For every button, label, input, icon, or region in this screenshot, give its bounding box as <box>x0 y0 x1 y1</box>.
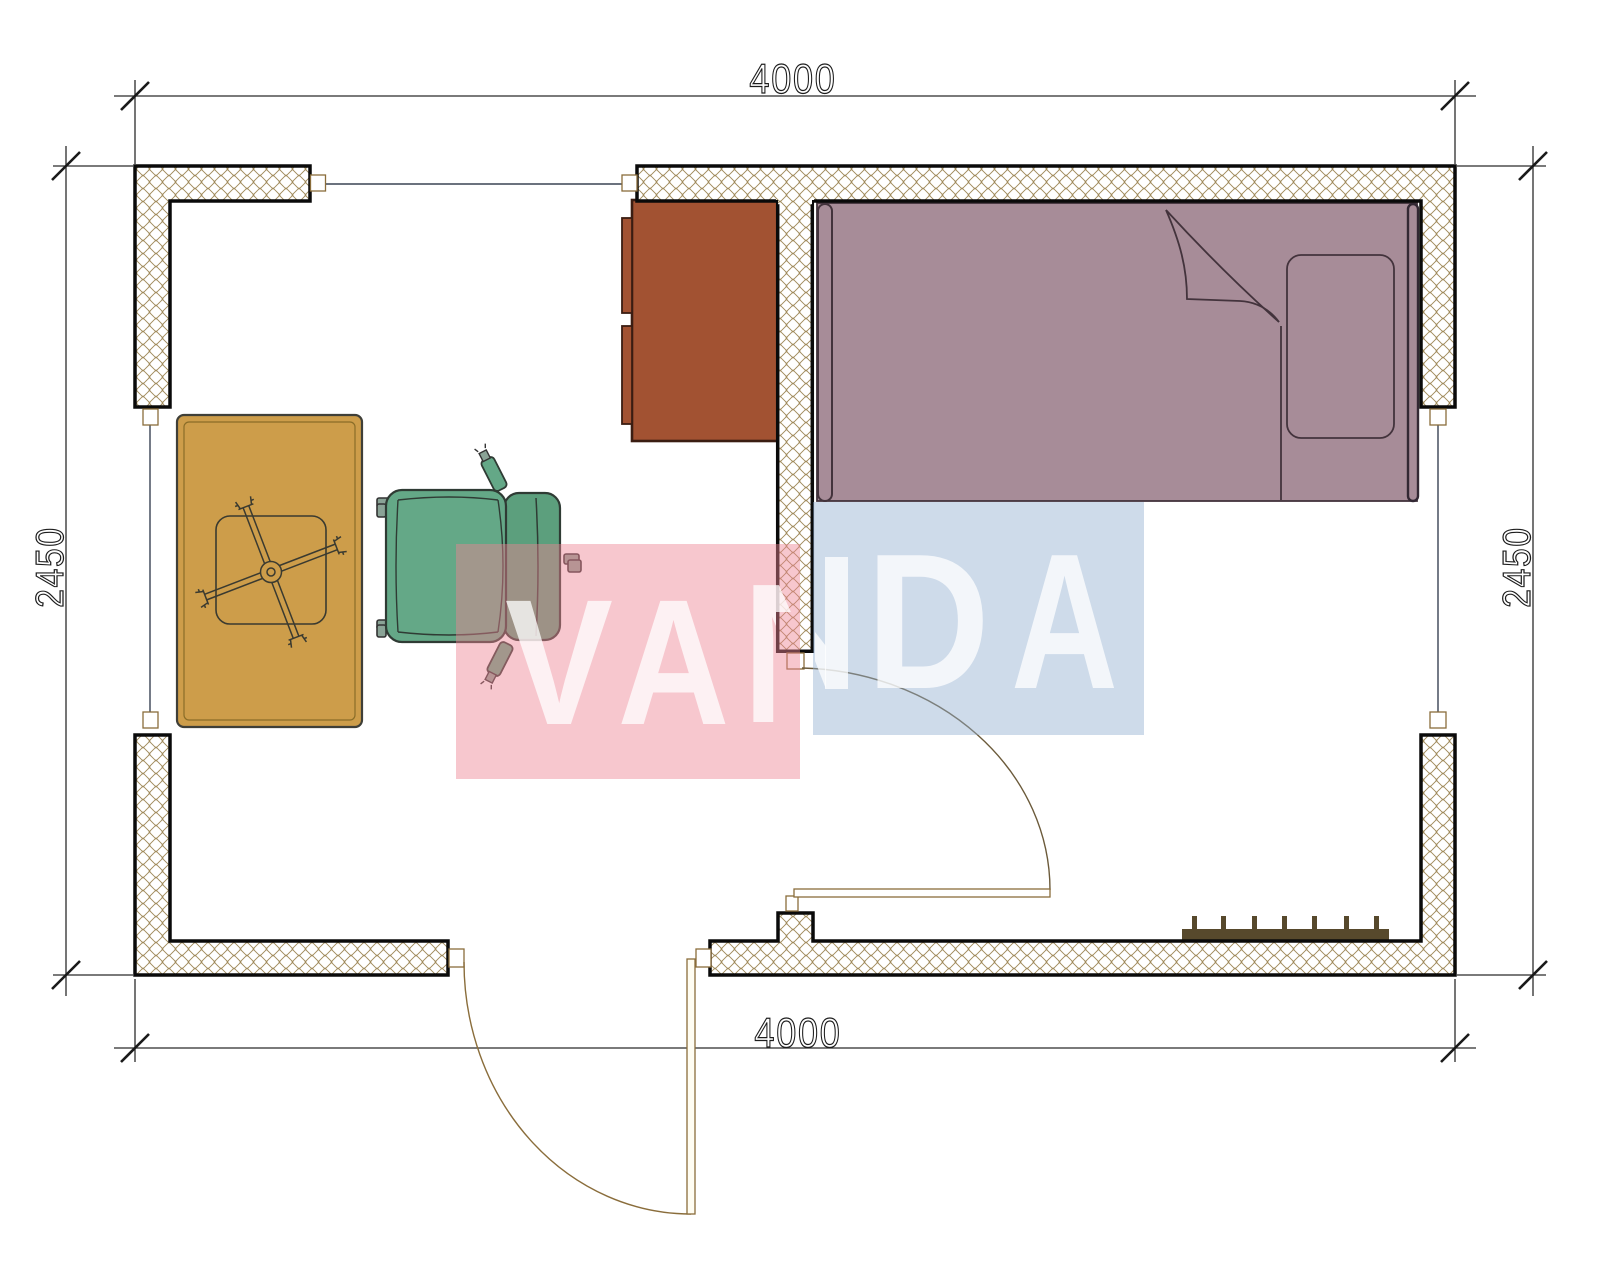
svg-text:4000: 4000 <box>749 57 836 103</box>
svg-text:V: V <box>505 562 613 762</box>
svg-text:A: A <box>1011 513 1118 729</box>
svg-text:D: D <box>866 513 990 729</box>
svg-text:4000: 4000 <box>754 1011 841 1057</box>
svg-text:A: A <box>618 562 730 762</box>
svg-text:2450: 2450 <box>28 526 72 607</box>
svg-text:2450: 2450 <box>1495 526 1539 607</box>
